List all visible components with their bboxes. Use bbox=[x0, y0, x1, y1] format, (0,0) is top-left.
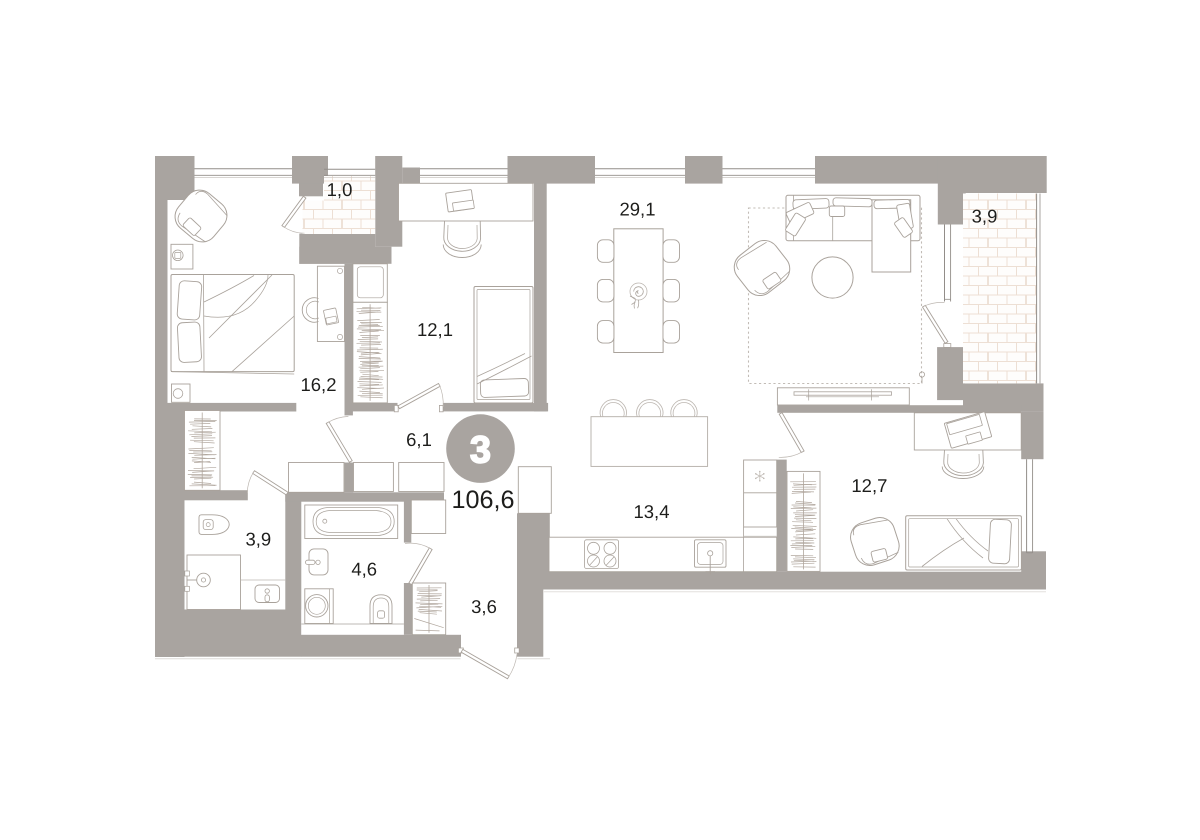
svg-text:106,6: 106,6 bbox=[452, 486, 515, 514]
svg-text:4,6: 4,6 bbox=[351, 559, 377, 580]
svg-text:13,4: 13,4 bbox=[633, 501, 669, 522]
svg-text:3: 3 bbox=[470, 430, 491, 472]
svg-text:3,6: 3,6 bbox=[471, 596, 497, 617]
svg-text:3,9: 3,9 bbox=[972, 206, 998, 227]
svg-text:12,1: 12,1 bbox=[417, 319, 453, 340]
svg-text:16,2: 16,2 bbox=[300, 374, 336, 395]
svg-text:29,1: 29,1 bbox=[619, 199, 655, 220]
svg-text:12,7: 12,7 bbox=[851, 475, 887, 496]
svg-text:6,1: 6,1 bbox=[406, 429, 432, 450]
svg-text:1,0: 1,0 bbox=[327, 179, 353, 200]
svg-text:3,9: 3,9 bbox=[245, 529, 271, 550]
